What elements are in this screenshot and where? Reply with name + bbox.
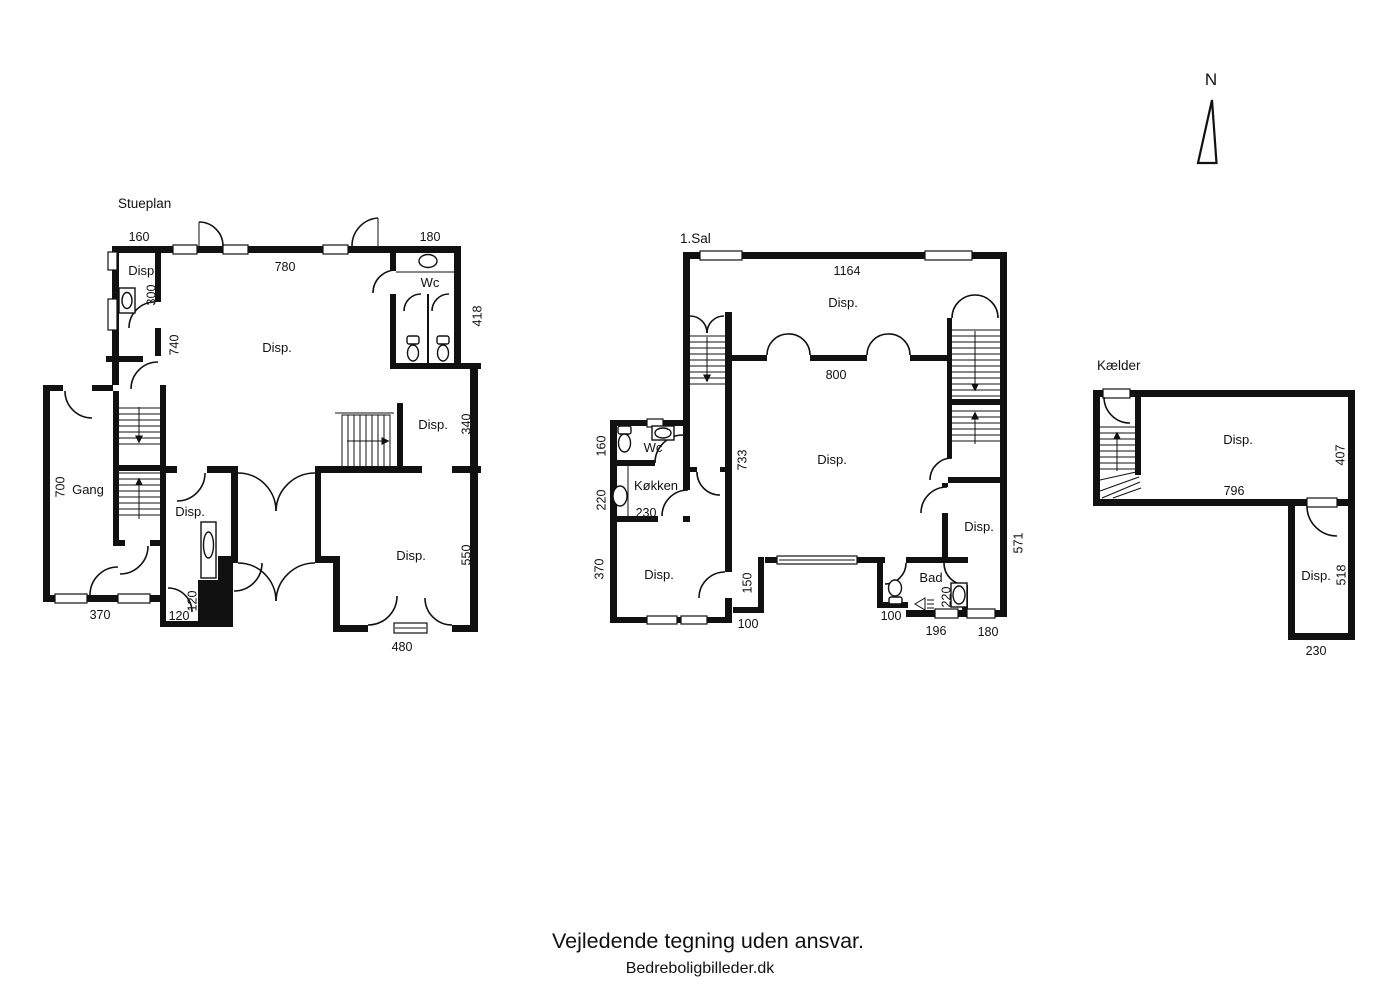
room-label: Disp. [644, 567, 674, 582]
room-label: Disp. [175, 504, 205, 519]
dim-label: 800 [826, 368, 847, 382]
dim-label: 230 [636, 506, 657, 520]
dim-label: 100 [881, 609, 902, 623]
sink-icon [652, 426, 674, 440]
dim-label: 518 [1334, 565, 1348, 586]
floorplan-drawing: Stueplan [0, 0, 1400, 989]
dim-label: 370 [592, 559, 606, 580]
room-label: Wc [644, 440, 663, 455]
dim-label: 780 [275, 260, 296, 274]
stueplan-plan: Stueplan [43, 196, 484, 654]
dim-label: 180 [978, 625, 999, 639]
first-floor-fixtures [613, 426, 967, 610]
north-label: N [1205, 70, 1217, 89]
room-label: Disp. [828, 295, 858, 310]
dim-label: 220 [939, 587, 953, 608]
dim-label: 196 [926, 624, 947, 638]
toilet-icon [618, 426, 631, 452]
basement-labels: 407 796 518 230 Disp. Disp. [1223, 432, 1348, 658]
room-label: Disp. [128, 263, 158, 278]
dim-label: 550 [459, 545, 473, 566]
dim-label: 418 [470, 306, 484, 327]
room-label: Disp. [1301, 568, 1331, 583]
dim-label: 700 [53, 477, 67, 498]
stair-flight-up-icon [119, 473, 160, 519]
cabinet-icon [201, 522, 216, 578]
toilet-icon [437, 336, 449, 361]
room-label: Gang [72, 482, 104, 497]
basement-title: Kælder [1097, 358, 1141, 373]
dim-label: 370 [90, 608, 111, 622]
basin-icon [419, 255, 437, 268]
toilet-icon [407, 336, 419, 361]
north-arrow-icon [1198, 100, 1217, 163]
stair-flight-down-icon [119, 407, 160, 444]
dim-label: 160 [594, 436, 608, 457]
floorplan-page: Stueplan [0, 0, 1400, 989]
dim-label: 796 [1224, 484, 1245, 498]
basement-plan: Kælder [1093, 358, 1355, 658]
north-indicator: N [1198, 70, 1217, 163]
first-floor-windows [647, 251, 995, 624]
stair-right-up-icon [952, 411, 1000, 444]
stair-right-down-icon [952, 330, 1000, 396]
sink-icon [951, 583, 967, 607]
stair-left-down-icon [690, 336, 725, 384]
shower-icon [915, 598, 934, 610]
dim-label: 300 [144, 285, 158, 306]
toilet-icon [889, 580, 903, 604]
dim-label: 740 [167, 335, 181, 356]
dim-label: 180 [420, 230, 441, 244]
room-label: Disp. [1223, 432, 1253, 447]
footer-credit: Bedreboligbilleder.dk [626, 960, 776, 977]
room-label: Disp. [396, 548, 426, 563]
footer: Vejledende tegning uden ansvar. Bedrebol… [552, 929, 864, 977]
sink-icon [119, 288, 135, 313]
dim-label: 480 [392, 640, 413, 654]
dim-label: 100 [738, 617, 759, 631]
dim-label: 120 [169, 609, 190, 623]
room-label: Køkken [634, 478, 678, 493]
dim-label: 340 [459, 414, 473, 435]
room-label: Disp. [418, 417, 448, 432]
basement-stairs [1100, 427, 1141, 498]
room-label: Wc [421, 275, 440, 290]
room-label: Disp. [964, 519, 994, 534]
first-floor-title: 1.Sal [680, 231, 711, 246]
dim-label: 733 [735, 450, 749, 471]
dim-label: 407 [1333, 445, 1347, 466]
stair-mid-icon [335, 413, 394, 467]
dim-label: 571 [1011, 533, 1025, 554]
stueplan-title: Stueplan [118, 196, 171, 211]
dim-label: 150 [740, 573, 754, 594]
footer-disclaimer: Vejledende tegning uden ansvar. [552, 929, 864, 953]
room-label: Bad [919, 570, 942, 585]
stueplan-windows [55, 245, 427, 633]
basin-icon [613, 486, 627, 506]
stueplan-fixtures [119, 255, 454, 579]
dim-label: 160 [129, 230, 150, 244]
stueplan-doors [65, 218, 452, 625]
room-label: Disp. [817, 452, 847, 467]
dim-label: 220 [594, 490, 608, 511]
dim-label: 230 [1306, 644, 1327, 658]
room-label: Disp. [262, 340, 292, 355]
first-floor-plan: 1.Sal [592, 231, 1025, 639]
stair-up-icon [1100, 427, 1141, 498]
dim-label: 1164 [834, 264, 861, 278]
first-floor-stairs [690, 330, 1000, 444]
